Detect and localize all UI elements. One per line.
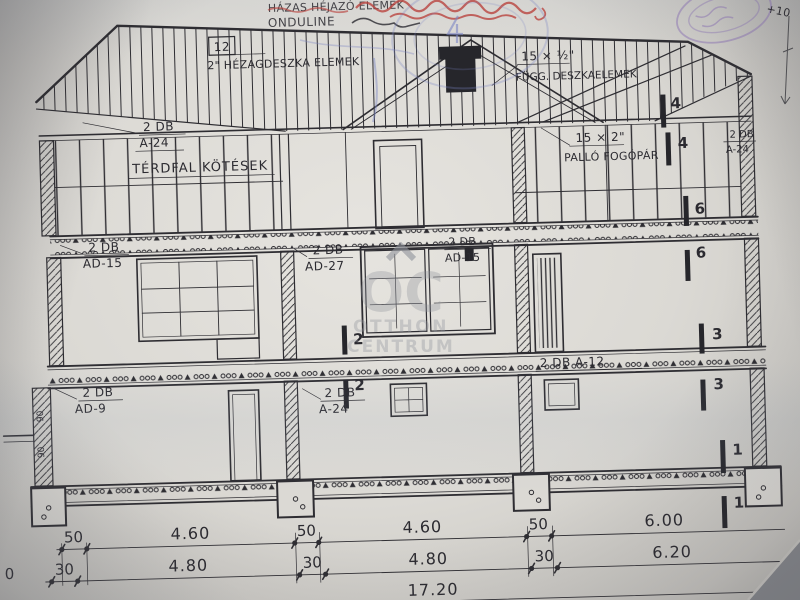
left-wall-upper [47, 257, 64, 365]
otthon-centrum-watermark: OC OTTHON CENTRUM [347, 246, 455, 357]
label-ad15-mid: 2 DB [448, 235, 476, 249]
small-window-lower [390, 383, 427, 416]
svg-text:A-24: A-24 [319, 401, 349, 416]
attic-studs-left [51, 134, 284, 235]
watermark-logo: OC [358, 261, 444, 324]
dimension-rows: 50 4.60 50 4.60 50 6.00 30 4.80 30 4.80 … [3, 507, 796, 600]
blueprint-photo: 90 90 [0, 0, 800, 600]
dim-r1-0: 50 [64, 528, 84, 547]
section-drawing: 90 90 [0, 0, 800, 600]
dim-r1-2: 50 [297, 521, 317, 540]
marker-3b: 3 [713, 375, 724, 393]
chimney-cap [439, 46, 481, 60]
marker-4a: 4 [670, 94, 681, 112]
inner-wall2-lower [518, 374, 534, 472]
door-lower-left [228, 390, 261, 481]
marker-1a: 1 [732, 440, 743, 458]
marker-3a: 3 [712, 325, 723, 343]
left-knee-wall [39, 141, 56, 236]
pencil-scribble [352, 18, 420, 27]
label-fur: 15 × ½" [521, 48, 575, 63]
ground-slab [4, 414, 782, 507]
svg-text:AD-9: AD-9 [75, 401, 107, 416]
dim-r2-0: 30 [55, 560, 75, 579]
label-ad9: 2 DB [82, 385, 113, 400]
dim-r2-3: 4.80 [408, 549, 448, 569]
dim-total: 17.20 [407, 579, 458, 599]
attic-door [374, 139, 424, 228]
svg-text:AD-15: AD-15 [445, 251, 481, 265]
label-ad15-left: 2 DB [88, 240, 119, 255]
svg-text:12: 12 [214, 40, 231, 54]
label-ad27: 2 DB [312, 243, 343, 258]
inner-wall1-upper [281, 251, 297, 359]
plus-ten-annotation: +10 [765, 2, 793, 104]
right-wall-upper [744, 238, 761, 346]
attic-studs-right [513, 121, 742, 222]
watermark-line1: OTTHON [353, 317, 449, 337]
dim-r1-3: 4.60 [402, 517, 442, 537]
dim-r2-1: 4.80 [168, 555, 208, 575]
dim-edge-partial: 0 [4, 565, 14, 583]
large-window-left [137, 256, 260, 361]
dark-door-right [533, 253, 564, 352]
label-a24-top: 2 DB [143, 119, 174, 134]
dim-r1-1: 4.60 [170, 523, 210, 543]
label-a24-low: 2 DB [324, 385, 355, 400]
dim-r2-5: 6.20 [652, 542, 692, 562]
marker-4b: 4 [677, 134, 688, 152]
dim-r2-2: 30 [303, 553, 323, 572]
marker-6a: 6 [694, 199, 705, 217]
svg-text:PALLÓ FOGÓPÁR: PALLÓ FOGÓPÁR [564, 149, 659, 165]
svg-text:AD-27: AD-27 [305, 259, 345, 274]
dim-r1-5: 6.00 [644, 510, 684, 530]
svg-text:A-24: A-24 [139, 135, 169, 150]
inner-wall2-attic [511, 127, 527, 222]
inner-wall1-lower [284, 381, 300, 479]
dim-r2-4: 30 [534, 547, 554, 566]
marker-6b: 6 [696, 243, 707, 261]
svg-text:A-24: A-24 [726, 144, 749, 156]
small-opening-lower-right [544, 379, 579, 410]
pencil-notes: HÁZAS HÉJAZÓ ELEMEK ONDULINE [268, 0, 420, 30]
watermark-line2: CENTRUM [347, 337, 455, 357]
dim-r1-4: 50 [529, 515, 549, 534]
wall-dim-90-lower: 90 [37, 446, 47, 458]
plus-ten-note: +10 [765, 2, 791, 20]
marker-2b: 2 [354, 376, 365, 394]
right-wall-lower [750, 368, 767, 466]
svg-text:AD-15: AD-15 [83, 256, 123, 271]
label-a24-right: 2 DB [729, 129, 754, 141]
pencil-note-line2: ONDULINE [268, 14, 336, 30]
stamp-illegible-text [695, 4, 734, 29]
paper-edge-corner [748, 540, 800, 600]
marker-1b: 1 [734, 493, 745, 511]
wall-dim-90-upper: 90 [36, 410, 46, 422]
inner-wall2-upper [515, 244, 531, 352]
label-a12: 2 DB A-12 [540, 354, 605, 370]
label-pallo: 15 × 2" [575, 130, 625, 145]
left-wall-lower [32, 388, 53, 486]
